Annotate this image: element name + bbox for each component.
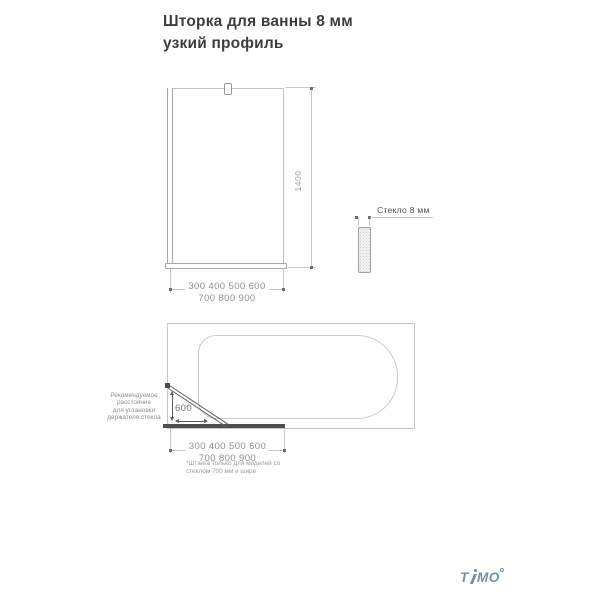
logo-letters-mo: MO xyxy=(477,570,500,585)
width-row-1: 300 400 500 600 xyxy=(185,281,268,292)
holder-note-line: Рекомендуемое xyxy=(104,392,164,399)
footnote-line: *Штанга только для моделей со xyxy=(186,460,280,468)
height-dim-line xyxy=(311,88,312,268)
dim-mark xyxy=(355,216,358,219)
dim-mark xyxy=(310,87,313,90)
glass-panel-outline xyxy=(168,88,284,264)
glass-cross-section xyxy=(358,227,371,273)
arrow-down-icon xyxy=(170,417,174,421)
recommended-distance-value: 600 xyxy=(175,403,192,414)
arrow-right-icon xyxy=(204,419,208,423)
arrow-left-icon xyxy=(175,419,179,423)
ext-line xyxy=(358,217,359,226)
top-hook-bracket xyxy=(224,83,232,95)
arrow-up-icon xyxy=(170,391,174,395)
holder-note-line: расстояние xyxy=(104,399,164,406)
footnote-line: стеклом 700 мм и шире xyxy=(186,468,280,476)
logo-letter-t: T xyxy=(460,570,469,585)
footnote: *Штанга только для моделей со стеклом 70… xyxy=(186,460,280,475)
timo-logo: T MO xyxy=(460,568,504,586)
leader-line xyxy=(370,217,433,218)
bottom-rail xyxy=(165,263,287,269)
tub-width-row-1: 300 400 500 600 xyxy=(186,441,269,452)
support-bar-anchor xyxy=(165,383,170,388)
width-row-2: 700 800 900 xyxy=(195,293,258,304)
holder-note-line: для установки xyxy=(104,407,164,414)
holder-note-line: держателя стекла xyxy=(104,414,164,421)
horizontal-arrow-line xyxy=(178,421,204,422)
height-dimension-label: 1400 xyxy=(293,161,303,201)
page-title: Шторка для ванны 8 мм узкий профиль xyxy=(163,11,388,55)
tub-basin xyxy=(198,335,398,419)
product-drawing-page: Шторка для ванны 8 мм узкий профиль 1400… xyxy=(0,0,600,600)
wall-profile xyxy=(167,88,173,264)
holder-note: Рекомендуемое расстояние для установки д… xyxy=(104,392,164,422)
logo-trademark-icon xyxy=(500,568,504,572)
width-dimension-labels: 300 400 500 600 700 800 900 xyxy=(168,281,286,304)
glass-thickness-label: Стекло 8 мм xyxy=(377,205,430,215)
vertical-arrow-line xyxy=(172,394,173,418)
dim-mark xyxy=(310,266,313,269)
logo-letter-i-bar xyxy=(470,574,476,584)
